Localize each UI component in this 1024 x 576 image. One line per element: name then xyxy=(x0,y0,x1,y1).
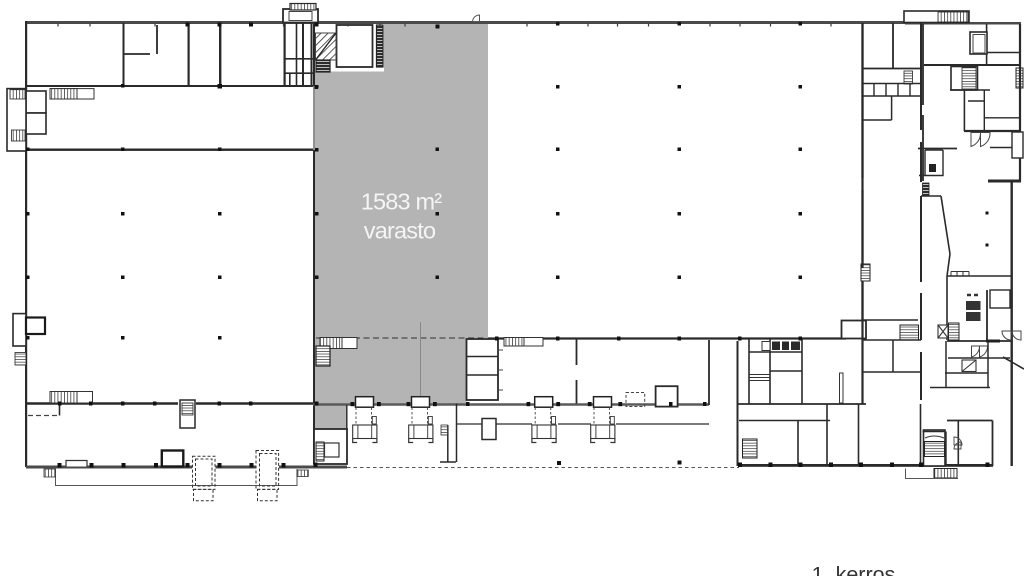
svg-text:varasto: varasto xyxy=(364,218,436,244)
svg-text:1583 m²: 1583 m² xyxy=(361,189,443,215)
svg-text:1. kerros: 1. kerros xyxy=(812,563,896,576)
